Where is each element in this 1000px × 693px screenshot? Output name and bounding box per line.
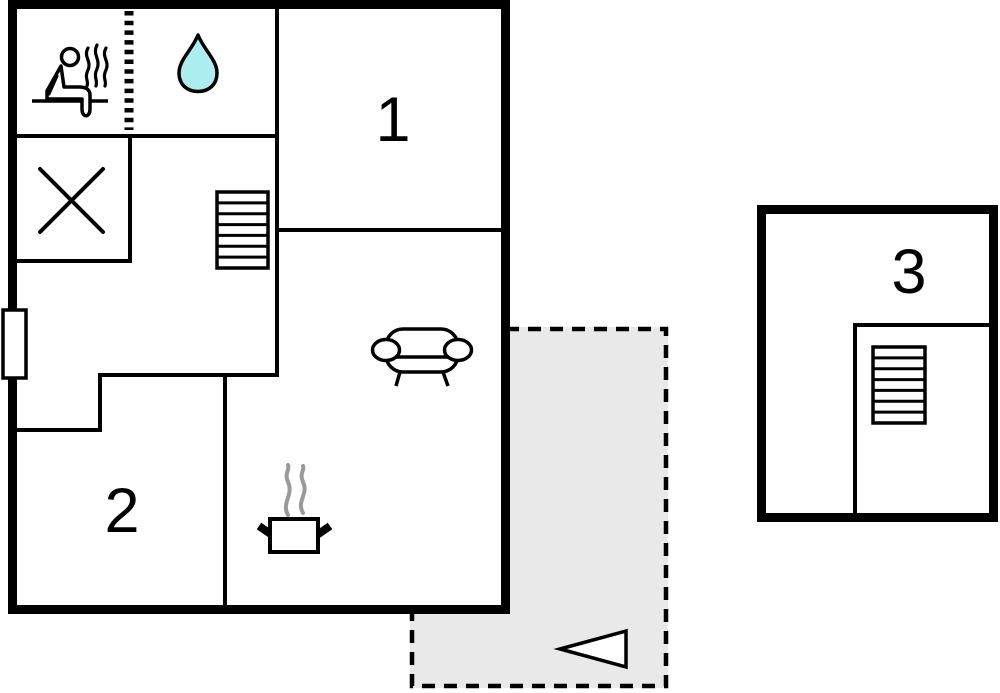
room-3-label: 3 — [891, 237, 926, 307]
annex-stairs-icon — [873, 347, 925, 423]
main-building: 1 2 — [3, 2, 506, 610]
room-2-label: 2 — [104, 476, 139, 546]
room-1-label: 1 — [375, 85, 410, 155]
stairs-icon — [217, 192, 268, 268]
window-marker — [3, 310, 26, 378]
annex-building: 3 — [762, 210, 995, 519]
floor-plan: 1 2 3 — [0, 0, 1000, 693]
